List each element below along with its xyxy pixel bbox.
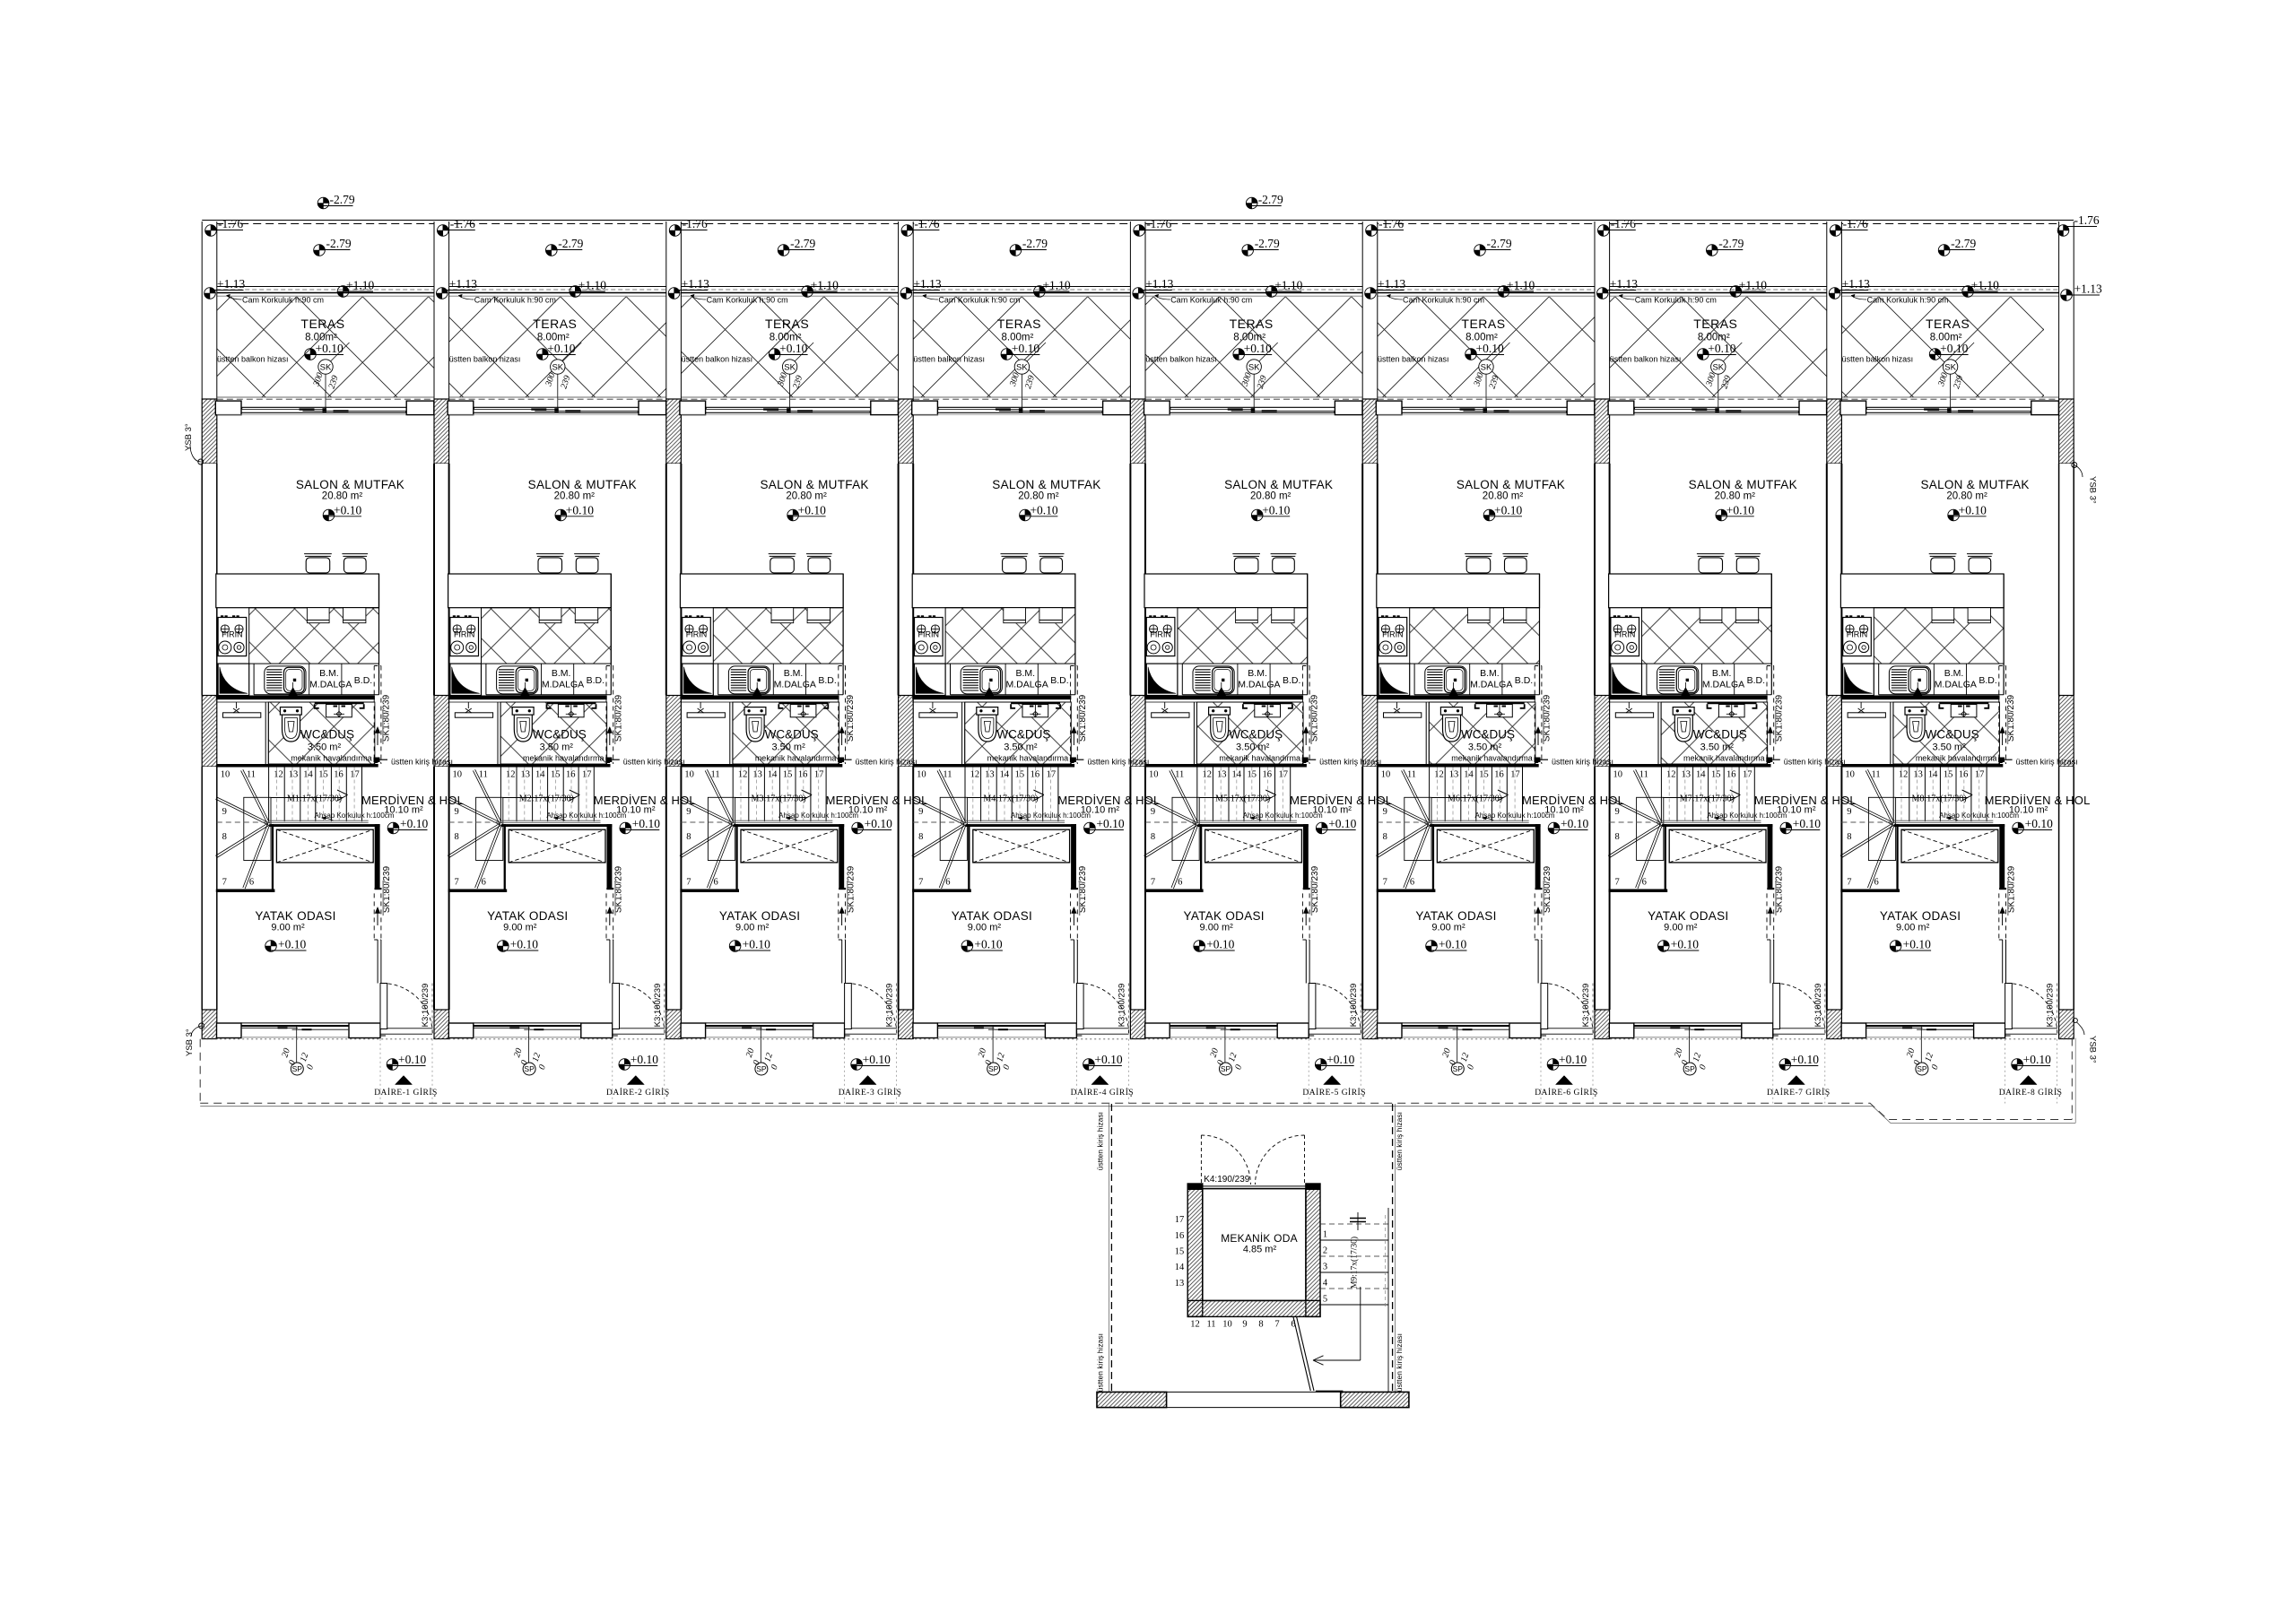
svg-text:M.DALGA: M.DALGA: [1702, 680, 1744, 690]
svg-text:14: 14: [1175, 1263, 1185, 1272]
svg-text:13: 13: [1449, 770, 1459, 780]
svg-text:+1.13: +1.13: [1610, 277, 1638, 291]
svg-text:17: 17: [1743, 770, 1752, 780]
svg-text:WC&DUŞ: WC&DUŞ: [765, 728, 819, 742]
svg-text:10.10 m²: 10.10 m²: [848, 805, 888, 816]
svg-text:6: 6: [713, 878, 717, 888]
svg-text:3.50 m²: 3.50 m²: [1004, 742, 1038, 753]
svg-text:10: 10: [1381, 770, 1391, 780]
svg-text:20.80 m²: 20.80 m²: [1018, 491, 1059, 502]
svg-text:+0.10: +0.10: [400, 817, 428, 830]
svg-text:13: 13: [1175, 1279, 1185, 1289]
svg-text:-2.79: -2.79: [330, 193, 355, 206]
svg-text:20.80 m²: 20.80 m²: [1250, 491, 1291, 502]
svg-text:DAİRE-6 GİRİŞ: DAİRE-6 GİRİŞ: [1535, 1087, 1598, 1098]
svg-text:+0.10: +0.10: [566, 503, 594, 516]
svg-text:YATAK ODASI: YATAK ODASI: [487, 909, 568, 923]
svg-text:üstten kiriş hizası: üstten kiriş hizası: [856, 758, 918, 767]
svg-text:14: 14: [1696, 770, 1706, 780]
svg-text:WC&DUŞ: WC&DUŞ: [533, 728, 587, 742]
svg-text:DAİRE-4 GİRİŞ: DAİRE-4 GİRİŞ: [1071, 1087, 1135, 1098]
svg-text:SALON & MUTFAK: SALON & MUTFAK: [296, 478, 404, 491]
svg-text:7: 7: [686, 878, 691, 888]
svg-text:+0.10: +0.10: [316, 342, 344, 355]
svg-text:WC&DUŞ: WC&DUŞ: [1229, 728, 1283, 742]
svg-text:17: 17: [1510, 770, 1520, 780]
svg-text:-1.76: -1.76: [1611, 217, 1636, 230]
svg-text:M.DALGA: M.DALGA: [542, 680, 584, 690]
svg-text:+1.13: +1.13: [217, 277, 245, 291]
svg-text:TERAS: TERAS: [997, 317, 1041, 331]
svg-text:B.M.: B.M.: [1712, 668, 1732, 679]
svg-text:DAİRE-5 GİRİŞ: DAİRE-5 GİRİŞ: [1302, 1087, 1366, 1098]
svg-text:14: 14: [1928, 770, 1938, 780]
svg-text:10: 10: [1613, 770, 1623, 780]
svg-text:B.D.: B.D.: [354, 675, 372, 686]
svg-text:10.10 m²: 10.10 m²: [616, 805, 656, 816]
svg-text:15: 15: [1015, 770, 1025, 780]
svg-text:üstten balkon hizası: üstten balkon hizası: [1842, 355, 1914, 364]
svg-text:+1.13: +1.13: [2074, 282, 2102, 296]
svg-text:10.10 m²: 10.10 m²: [1081, 805, 1120, 816]
svg-text:SK: SK: [320, 362, 332, 372]
svg-text:12: 12: [738, 770, 748, 780]
svg-text:DAİRE-1 GİRİŞ: DAİRE-1 GİRİŞ: [374, 1087, 438, 1098]
svg-text:8: 8: [454, 832, 458, 842]
svg-text:17: 17: [582, 770, 592, 780]
svg-text:B.M.: B.M.: [784, 668, 804, 679]
svg-text:9.00 m²: 9.00 m²: [271, 923, 305, 933]
svg-text:M.DALGA: M.DALGA: [1005, 680, 1048, 690]
svg-text:B.D.: B.D.: [587, 675, 604, 686]
svg-text:+0.10: +0.10: [1959, 503, 1987, 516]
svg-text:20.80 m²: 20.80 m²: [554, 491, 596, 502]
svg-text:8: 8: [686, 832, 691, 842]
svg-text:9.00 m²: 9.00 m²: [503, 923, 537, 933]
svg-text:11: 11: [711, 770, 720, 780]
svg-text:-1.76: -1.76: [450, 217, 475, 230]
svg-text:M.DALGA: M.DALGA: [1935, 680, 1977, 690]
svg-text:SALON & MUTFAK: SALON & MUTFAK: [1224, 478, 1333, 491]
svg-text:YATAK ODASI: YATAK ODASI: [1648, 909, 1728, 923]
svg-text:üstten balkon hizası: üstten balkon hizası: [682, 355, 753, 364]
svg-text:14: 14: [768, 770, 778, 780]
svg-text:B.D.: B.D.: [1050, 675, 1068, 686]
svg-text:SALON & MUTFAK: SALON & MUTFAK: [992, 478, 1100, 491]
svg-text:K3:100/239: K3:100/239: [421, 984, 430, 1028]
svg-text:8: 8: [1258, 1320, 1263, 1330]
svg-text:B.M.: B.M.: [1248, 668, 1267, 679]
svg-text:3.50 m²: 3.50 m²: [1468, 742, 1502, 753]
svg-text:7: 7: [1614, 878, 1619, 888]
svg-text:3: 3: [1323, 1263, 1327, 1272]
svg-text:üstten kiriş hizası: üstten kiriş hizası: [2016, 758, 2078, 767]
svg-text:16: 16: [1959, 770, 1969, 780]
svg-text:7: 7: [918, 878, 923, 888]
svg-text:K3:100/239: K3:100/239: [1581, 984, 1591, 1028]
svg-text:M.DALGA: M.DALGA: [1238, 680, 1280, 690]
svg-text:-1.76: -1.76: [1378, 217, 1404, 230]
svg-text:+0.10: +0.10: [278, 938, 306, 951]
svg-text:Cam Korkuluk h:90 cm: Cam Korkuluk h:90 cm: [1170, 296, 1252, 305]
svg-text:9.00 m²: 9.00 m²: [1664, 923, 1698, 933]
svg-text:K3:100/239: K3:100/239: [1117, 984, 1126, 1028]
svg-text:11: 11: [479, 770, 488, 780]
svg-text:M7:17x(17/30): M7:17x(17/30): [1680, 794, 1735, 804]
svg-text:+0.10: +0.10: [1671, 938, 1699, 951]
svg-text:12: 12: [1666, 770, 1676, 780]
svg-text:SK: SK: [1944, 362, 1956, 372]
svg-text:20.80 m²: 20.80 m²: [1715, 491, 1756, 502]
svg-text:20.80 m²: 20.80 m²: [322, 491, 363, 502]
svg-text:Cam Korkuluk h:90 cm: Cam Korkuluk h:90 cm: [938, 296, 1020, 305]
svg-text:14: 14: [1231, 770, 1241, 780]
svg-text:10: 10: [1222, 1320, 1232, 1330]
svg-text:Cam Korkuluk h:90 cm: Cam Korkuluk h:90 cm: [1403, 296, 1484, 305]
svg-text:FIRIN: FIRIN: [1614, 630, 1636, 639]
svg-text:-1.76: -1.76: [218, 217, 243, 230]
svg-text:17: 17: [1175, 1215, 1185, 1225]
svg-text:+1.10: +1.10: [1739, 279, 1767, 292]
svg-text:mekanik havalandırma: mekanik havalandırma: [1916, 754, 1997, 763]
svg-text:B.D.: B.D.: [1979, 675, 1996, 686]
svg-text:9.00 m²: 9.00 m²: [1896, 923, 1930, 933]
svg-text:6: 6: [482, 878, 486, 888]
svg-text:+0.10: +0.10: [1030, 503, 1057, 516]
svg-text:DAİRE-7 GİRİŞ: DAİRE-7 GİRİŞ: [1767, 1087, 1831, 1098]
svg-text:üstten kiriş hizası: üstten kiriş hizası: [1395, 1333, 1404, 1392]
svg-text:TERAS: TERAS: [1461, 317, 1505, 331]
svg-text:-2.79: -2.79: [790, 237, 815, 250]
svg-text:11: 11: [1175, 770, 1184, 780]
svg-text:M3:17x(17/30): M3:17x(17/30): [752, 794, 806, 804]
svg-text:13: 13: [1217, 770, 1227, 780]
svg-text:+0.10: +0.10: [334, 503, 361, 516]
svg-text:M1:17x(17/30): M1:17x(17/30): [287, 794, 342, 804]
svg-text:+0.10: +0.10: [1262, 503, 1290, 516]
svg-text:8: 8: [1383, 832, 1387, 842]
svg-text:K3:100/239: K3:100/239: [885, 984, 895, 1028]
svg-text:7: 7: [1274, 1320, 1279, 1330]
svg-text:üstten kiriş hizası: üstten kiriş hizası: [623, 758, 685, 767]
svg-text:+0.10: +0.10: [632, 817, 660, 830]
svg-text:7: 7: [1847, 878, 1851, 888]
svg-text:üstten kiriş hizası: üstten kiriş hizası: [1784, 758, 1846, 767]
svg-text:-2.79: -2.79: [1718, 237, 1744, 250]
svg-text:+1.10: +1.10: [811, 279, 839, 292]
svg-text:MEKANİK ODA: MEKANİK ODA: [1221, 1232, 1298, 1245]
svg-text:YATAK ODASI: YATAK ODASI: [1184, 909, 1265, 923]
svg-text:20.80 m²: 20.80 m²: [1946, 491, 1987, 502]
svg-text:TERAS: TERAS: [533, 317, 577, 331]
svg-text:+0.10: +0.10: [1476, 342, 1504, 355]
svg-text:üstten kiriş hizası: üstten kiriş hizası: [1096, 1112, 1105, 1170]
svg-text:10: 10: [453, 770, 463, 780]
svg-text:15: 15: [1944, 770, 1953, 780]
svg-text:YSB 3°: YSB 3°: [185, 1028, 195, 1056]
svg-text:üstten kiriş hizası: üstten kiriş hizası: [1087, 758, 1149, 767]
svg-text:M4:17x(17/30): M4:17x(17/30): [983, 794, 1038, 804]
svg-text:TERAS: TERAS: [1926, 317, 1970, 331]
svg-text:16: 16: [1494, 770, 1504, 780]
svg-text:M6:17x(17/30): M6:17x(17/30): [1448, 794, 1502, 804]
svg-text:üstten kiriş hizası: üstten kiriş hizası: [1552, 758, 1613, 767]
svg-text:11: 11: [1872, 770, 1881, 780]
svg-text:9: 9: [918, 807, 923, 817]
svg-text:SK: SK: [552, 362, 563, 372]
svg-text:3.50 m²: 3.50 m²: [1932, 742, 1966, 753]
svg-text:+1.10: +1.10: [1507, 279, 1535, 292]
svg-text:9: 9: [1614, 807, 1619, 817]
svg-text:+0.10: +0.10: [1326, 1053, 1354, 1066]
svg-text:3.50 m²: 3.50 m²: [1700, 742, 1735, 753]
svg-text:7: 7: [1383, 878, 1387, 888]
svg-text:-1.76: -1.76: [914, 217, 939, 230]
svg-text:10: 10: [221, 770, 230, 780]
svg-text:4.85 m²: 4.85 m²: [1243, 1245, 1277, 1255]
svg-text:+0.10: +0.10: [1561, 817, 1588, 830]
svg-text:9.00 m²: 9.00 m²: [735, 923, 770, 933]
svg-text:9: 9: [222, 807, 227, 817]
svg-text:üstten kiriş hizası: üstten kiriş hizası: [391, 758, 453, 767]
svg-text:15: 15: [551, 770, 561, 780]
svg-text:15: 15: [1175, 1247, 1185, 1257]
svg-text:6: 6: [1642, 878, 1647, 888]
svg-text:M2:17x(17/30): M2:17x(17/30): [519, 794, 574, 804]
svg-text:üstten balkon hizası: üstten balkon hizası: [449, 355, 521, 364]
svg-text:11: 11: [1639, 770, 1648, 780]
svg-text:6: 6: [1410, 878, 1414, 888]
svg-text:10: 10: [1149, 770, 1159, 780]
svg-text:12: 12: [506, 770, 516, 780]
svg-text:FIRIN: FIRIN: [454, 630, 475, 639]
svg-text:-2.79: -2.79: [1255, 237, 1280, 250]
svg-text:YATAK ODASI: YATAK ODASI: [952, 909, 1032, 923]
svg-text:13: 13: [985, 770, 995, 780]
svg-text:+0.10: +0.10: [865, 817, 892, 830]
svg-text:M5:17x(17/30): M5:17x(17/30): [1215, 794, 1270, 804]
svg-text:-2.79: -2.79: [558, 237, 583, 250]
svg-text:SK: SK: [1712, 362, 1724, 372]
svg-text:YATAK ODASI: YATAK ODASI: [1415, 909, 1496, 923]
svg-text:+0.10: +0.10: [2025, 817, 2053, 830]
svg-text:WC&DUŞ: WC&DUŞ: [300, 728, 354, 742]
svg-text:4: 4: [1323, 1279, 1328, 1289]
svg-text:8: 8: [1151, 832, 1155, 842]
svg-text:üstten balkon hizası: üstten balkon hizası: [1145, 355, 1217, 364]
svg-text:11: 11: [1407, 770, 1416, 780]
svg-text:üstten balkon hizası: üstten balkon hizası: [1378, 355, 1449, 364]
svg-text:+0.10: +0.10: [1328, 817, 1356, 830]
svg-text:15: 15: [1711, 770, 1721, 780]
svg-text:14: 14: [535, 770, 545, 780]
svg-text:SALON & MUTFAK: SALON & MUTFAK: [760, 478, 868, 491]
svg-text:+0.10: +0.10: [1793, 817, 1821, 830]
svg-text:+1.13: +1.13: [1145, 277, 1173, 291]
svg-text:üstten balkon hizası: üstten balkon hizası: [217, 355, 289, 364]
svg-text:+0.10: +0.10: [398, 1053, 426, 1066]
svg-text:3.50 m²: 3.50 m²: [1236, 742, 1270, 753]
svg-text:üstten balkon hizası: üstten balkon hizası: [1610, 355, 1682, 364]
svg-text:2: 2: [1323, 1246, 1327, 1256]
svg-text:17: 17: [1975, 770, 1985, 780]
svg-text:9: 9: [1242, 1320, 1247, 1330]
svg-text:+0.10: +0.10: [1708, 342, 1735, 355]
svg-text:FIRIN: FIRIN: [1150, 630, 1171, 639]
svg-text:üstten kiriş hizası: üstten kiriş hizası: [1395, 1112, 1404, 1170]
svg-text:+0.10: +0.10: [974, 938, 1002, 951]
svg-text:-1.76: -1.76: [1146, 217, 1171, 230]
svg-text:WC&DUŞ: WC&DUŞ: [1926, 728, 1979, 742]
svg-text:5: 5: [1323, 1295, 1327, 1305]
svg-text:9: 9: [1847, 807, 1851, 817]
svg-text:7: 7: [222, 878, 227, 888]
svg-text:-1.76: -1.76: [2074, 213, 2100, 227]
svg-text:+0.10: +0.10: [1094, 1053, 1122, 1066]
svg-text:+0.10: +0.10: [1096, 817, 1124, 830]
svg-text:+0.10: +0.10: [1559, 1053, 1587, 1066]
svg-text:+1.13: +1.13: [449, 277, 477, 291]
svg-text:mekanik havalandırma: mekanik havalandırma: [1451, 754, 1533, 763]
svg-text:-1.76: -1.76: [683, 217, 708, 230]
svg-text:K3:100/239: K3:100/239: [1349, 984, 1359, 1028]
svg-text:+0.10: +0.10: [743, 938, 770, 951]
svg-text:16: 16: [798, 770, 808, 780]
svg-text:6: 6: [1178, 878, 1182, 888]
svg-text:B.D.: B.D.: [1747, 675, 1765, 686]
svg-text:FIRIN: FIRIN: [686, 630, 708, 639]
svg-text:TERAS: TERAS: [1230, 317, 1274, 331]
svg-text:15: 15: [1247, 770, 1257, 780]
svg-text:12: 12: [1202, 770, 1212, 780]
svg-text:WC&DUŞ: WC&DUŞ: [1693, 728, 1747, 742]
svg-text:17: 17: [350, 770, 360, 780]
svg-text:12: 12: [970, 770, 980, 780]
svg-text:Cam Korkuluk h:90 cm: Cam Korkuluk h:90 cm: [1867, 296, 1949, 305]
svg-text:TERAS: TERAS: [765, 317, 809, 331]
svg-text:15: 15: [783, 770, 793, 780]
svg-text:+0.10: +0.10: [1012, 342, 1039, 355]
svg-text:M.DALGA: M.DALGA: [309, 680, 352, 690]
svg-text:+0.10: +0.10: [547, 342, 575, 355]
svg-text:10.10 m²: 10.10 m²: [1777, 805, 1816, 816]
svg-text:mekanik havalandırma: mekanik havalandırma: [1219, 754, 1300, 763]
svg-text:+0.10: +0.10: [1791, 1053, 1819, 1066]
svg-text:YSB 3°: YSB 3°: [2088, 1036, 2098, 1063]
svg-text:10.10 m²: 10.10 m²: [1312, 805, 1352, 816]
svg-text:+0.10: +0.10: [631, 1053, 658, 1066]
svg-text:Cam Korkuluk h:90 cm: Cam Korkuluk h:90 cm: [707, 296, 788, 305]
svg-text:DAİRE-8 GİRİŞ: DAİRE-8 GİRİŞ: [1999, 1087, 2063, 1098]
svg-text:DAİRE-2 GİRİŞ: DAİRE-2 GİRİŞ: [606, 1087, 670, 1098]
svg-text:YATAK ODASI: YATAK ODASI: [1880, 909, 1961, 923]
svg-text:20.80 m²: 20.80 m²: [1483, 491, 1524, 502]
svg-text:-2.79: -2.79: [1022, 237, 1048, 250]
svg-text:+1.10: +1.10: [1042, 279, 1070, 292]
svg-text:10.10 m²: 10.10 m²: [1544, 805, 1584, 816]
svg-text:mekanik havalandırma: mekanik havalandırma: [987, 754, 1069, 763]
svg-text:TERAS: TERAS: [1693, 317, 1737, 331]
svg-text:9: 9: [454, 807, 458, 817]
svg-text:13: 13: [1913, 770, 1923, 780]
svg-text:9.00 m²: 9.00 m²: [1431, 923, 1465, 933]
svg-text:7: 7: [454, 878, 458, 888]
svg-text:12: 12: [1434, 770, 1444, 780]
svg-text:M8:17x(17/30): M8:17x(17/30): [1912, 794, 1967, 804]
svg-text:B.D.: B.D.: [818, 675, 836, 686]
svg-text:8: 8: [1614, 832, 1619, 842]
svg-text:6: 6: [945, 878, 950, 888]
svg-text:8: 8: [1847, 832, 1851, 842]
svg-text:+1.10: +1.10: [1971, 279, 1999, 292]
svg-text:M.DALGA: M.DALGA: [1470, 680, 1512, 690]
svg-text:11: 11: [247, 770, 256, 780]
svg-text:12: 12: [274, 770, 283, 780]
svg-text:B.M.: B.M.: [1944, 668, 1964, 679]
svg-text:üstten kiriş hizası: üstten kiriş hizası: [1319, 758, 1381, 767]
svg-text:+0.10: +0.10: [1903, 938, 1931, 951]
svg-text:+0.10: +0.10: [1439, 938, 1466, 951]
svg-text:mekanik havalandırma: mekanik havalandırma: [1683, 754, 1765, 763]
svg-text:+0.10: +0.10: [863, 1053, 891, 1066]
svg-text:-2.79: -2.79: [1951, 237, 1976, 250]
svg-text:K4:190/239: K4:190/239: [1204, 1175, 1250, 1185]
svg-text:20.80 m²: 20.80 m²: [786, 491, 827, 502]
svg-text:FIRIN: FIRIN: [222, 630, 243, 639]
svg-text:B.M.: B.M.: [1480, 668, 1500, 679]
svg-text:9.00 m²: 9.00 m²: [968, 923, 1002, 933]
svg-text:16: 16: [1262, 770, 1272, 780]
svg-text:B.M.: B.M.: [552, 668, 571, 679]
svg-text:FIRIN: FIRIN: [918, 630, 940, 639]
svg-text:14: 14: [1000, 770, 1010, 780]
svg-text:14: 14: [303, 770, 313, 780]
svg-text:YATAK ODASI: YATAK ODASI: [255, 909, 335, 923]
svg-text:üstten kiriş hizası: üstten kiriş hizası: [1096, 1333, 1105, 1392]
svg-text:10: 10: [1845, 770, 1855, 780]
svg-text:+0.10: +0.10: [1726, 503, 1754, 516]
svg-text:11: 11: [1206, 1320, 1215, 1330]
svg-text:9.00 m²: 9.00 m²: [1200, 923, 1234, 933]
svg-text:+0.10: +0.10: [798, 503, 826, 516]
svg-text:8: 8: [918, 832, 923, 842]
svg-text:10.10 m²: 10.10 m²: [384, 805, 423, 816]
svg-text:B.D.: B.D.: [1283, 675, 1300, 686]
svg-text:YSB 3°: YSB 3°: [184, 423, 194, 451]
svg-text:16: 16: [334, 770, 344, 780]
svg-text:K3:100/239: K3:100/239: [2046, 984, 2056, 1028]
svg-text:SALON & MUTFAK: SALON & MUTFAK: [1457, 478, 1565, 491]
svg-text:6: 6: [1874, 878, 1878, 888]
svg-text:3.50 m²: 3.50 m²: [771, 742, 805, 753]
svg-text:17: 17: [1278, 770, 1288, 780]
svg-text:16: 16: [1031, 770, 1040, 780]
svg-text:13: 13: [521, 770, 531, 780]
svg-text:15: 15: [318, 770, 328, 780]
svg-text:+1.13: +1.13: [913, 277, 941, 291]
svg-text:SALON & MUTFAK: SALON & MUTFAK: [1920, 478, 2029, 491]
svg-text:YATAK ODASI: YATAK ODASI: [719, 909, 800, 923]
svg-text:FIRIN: FIRIN: [1382, 630, 1404, 639]
svg-text:14: 14: [1464, 770, 1474, 780]
svg-text:16: 16: [1175, 1231, 1185, 1241]
svg-text:-2.79: -2.79: [1487, 237, 1512, 250]
svg-text:-2.79: -2.79: [1258, 193, 1283, 206]
svg-text:+1.10: +1.10: [346, 279, 374, 292]
svg-text:9: 9: [1151, 807, 1155, 817]
svg-text:YSB 3°: YSB 3°: [2088, 476, 2098, 504]
svg-text:6: 6: [249, 878, 254, 888]
